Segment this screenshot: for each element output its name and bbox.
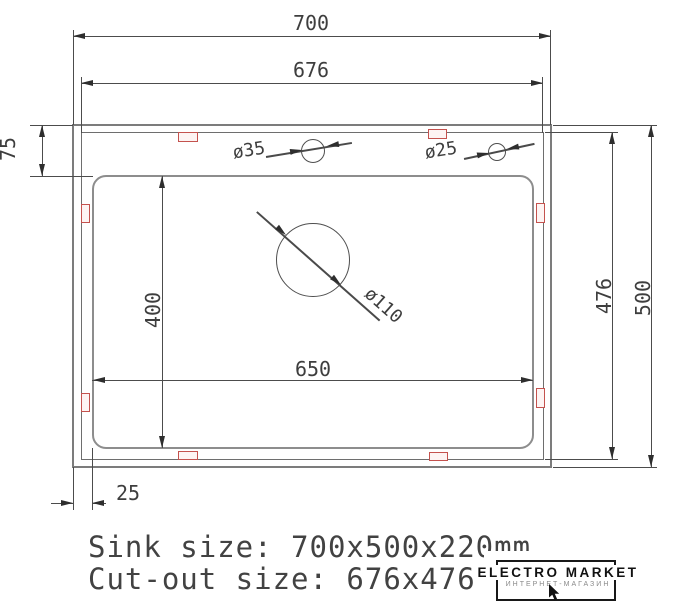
dim-line-676 xyxy=(81,83,543,84)
dim-650-label: 650 xyxy=(283,361,343,377)
ext-line xyxy=(30,125,73,126)
arrow-icon xyxy=(159,436,165,448)
arrow-icon xyxy=(531,80,543,86)
ext-line xyxy=(553,467,657,468)
faucet-hole-label: ø35 xyxy=(230,140,268,161)
logo-title: ELECTRO MARKET xyxy=(477,565,639,580)
ext-line xyxy=(545,459,618,460)
ext-line xyxy=(550,30,551,125)
sink-technical-drawing: 700 676 75 400 650 476 500 25 ø35 ø25 xyxy=(0,0,680,616)
arrow-icon xyxy=(39,125,45,137)
arrow-icon xyxy=(39,164,45,176)
mounting-clip xyxy=(428,129,447,139)
sink-size-text: Sink size: 700x500x220mm xyxy=(88,532,531,562)
arrow-icon xyxy=(159,176,165,188)
arrow-icon xyxy=(290,147,303,155)
arrow-icon xyxy=(609,132,615,144)
arrow-icon xyxy=(539,33,551,39)
ext-line xyxy=(73,467,74,510)
mounting-clip xyxy=(429,452,448,461)
arrow-icon xyxy=(73,33,85,39)
mounting-clip xyxy=(178,451,198,460)
ext-line xyxy=(553,125,657,126)
arrow-icon xyxy=(521,377,533,383)
accessory-hole-label: ø25 xyxy=(422,140,460,161)
arrow-icon xyxy=(93,377,105,383)
arrow-icon xyxy=(648,125,654,137)
mounting-clip xyxy=(81,393,90,412)
electro-market-logo: ELECTRO MARKET ИНТЕРНЕТ-МАГАЗИН xyxy=(484,551,632,608)
mounting-clip xyxy=(536,388,545,408)
arrow-icon xyxy=(81,80,93,86)
dim-line-700 xyxy=(73,36,551,37)
dim-400-label: 400 xyxy=(145,288,161,332)
dim-500-label: 500 xyxy=(635,276,651,320)
arrow-icon xyxy=(609,447,615,459)
mounting-clip xyxy=(178,132,198,142)
arrow-icon xyxy=(61,500,73,506)
ext-line xyxy=(73,30,74,125)
cutout-size-text: Cut-out size: 676x476 xyxy=(88,564,476,594)
dim-700-label: 700 xyxy=(291,15,331,31)
arrow-icon xyxy=(92,500,104,506)
dim-75-label: 75 xyxy=(0,133,16,165)
arrow-icon xyxy=(327,141,340,149)
arrow-icon xyxy=(648,455,654,467)
mounting-clip xyxy=(81,204,90,223)
ext-line xyxy=(30,176,93,177)
dim-676-label: 676 xyxy=(291,62,331,78)
dim-476-label: 476 xyxy=(596,274,612,318)
cursor-icon xyxy=(548,584,561,605)
mounting-clip xyxy=(536,203,545,223)
dim-25-label: 25 xyxy=(110,485,146,501)
ext-line xyxy=(545,132,618,133)
